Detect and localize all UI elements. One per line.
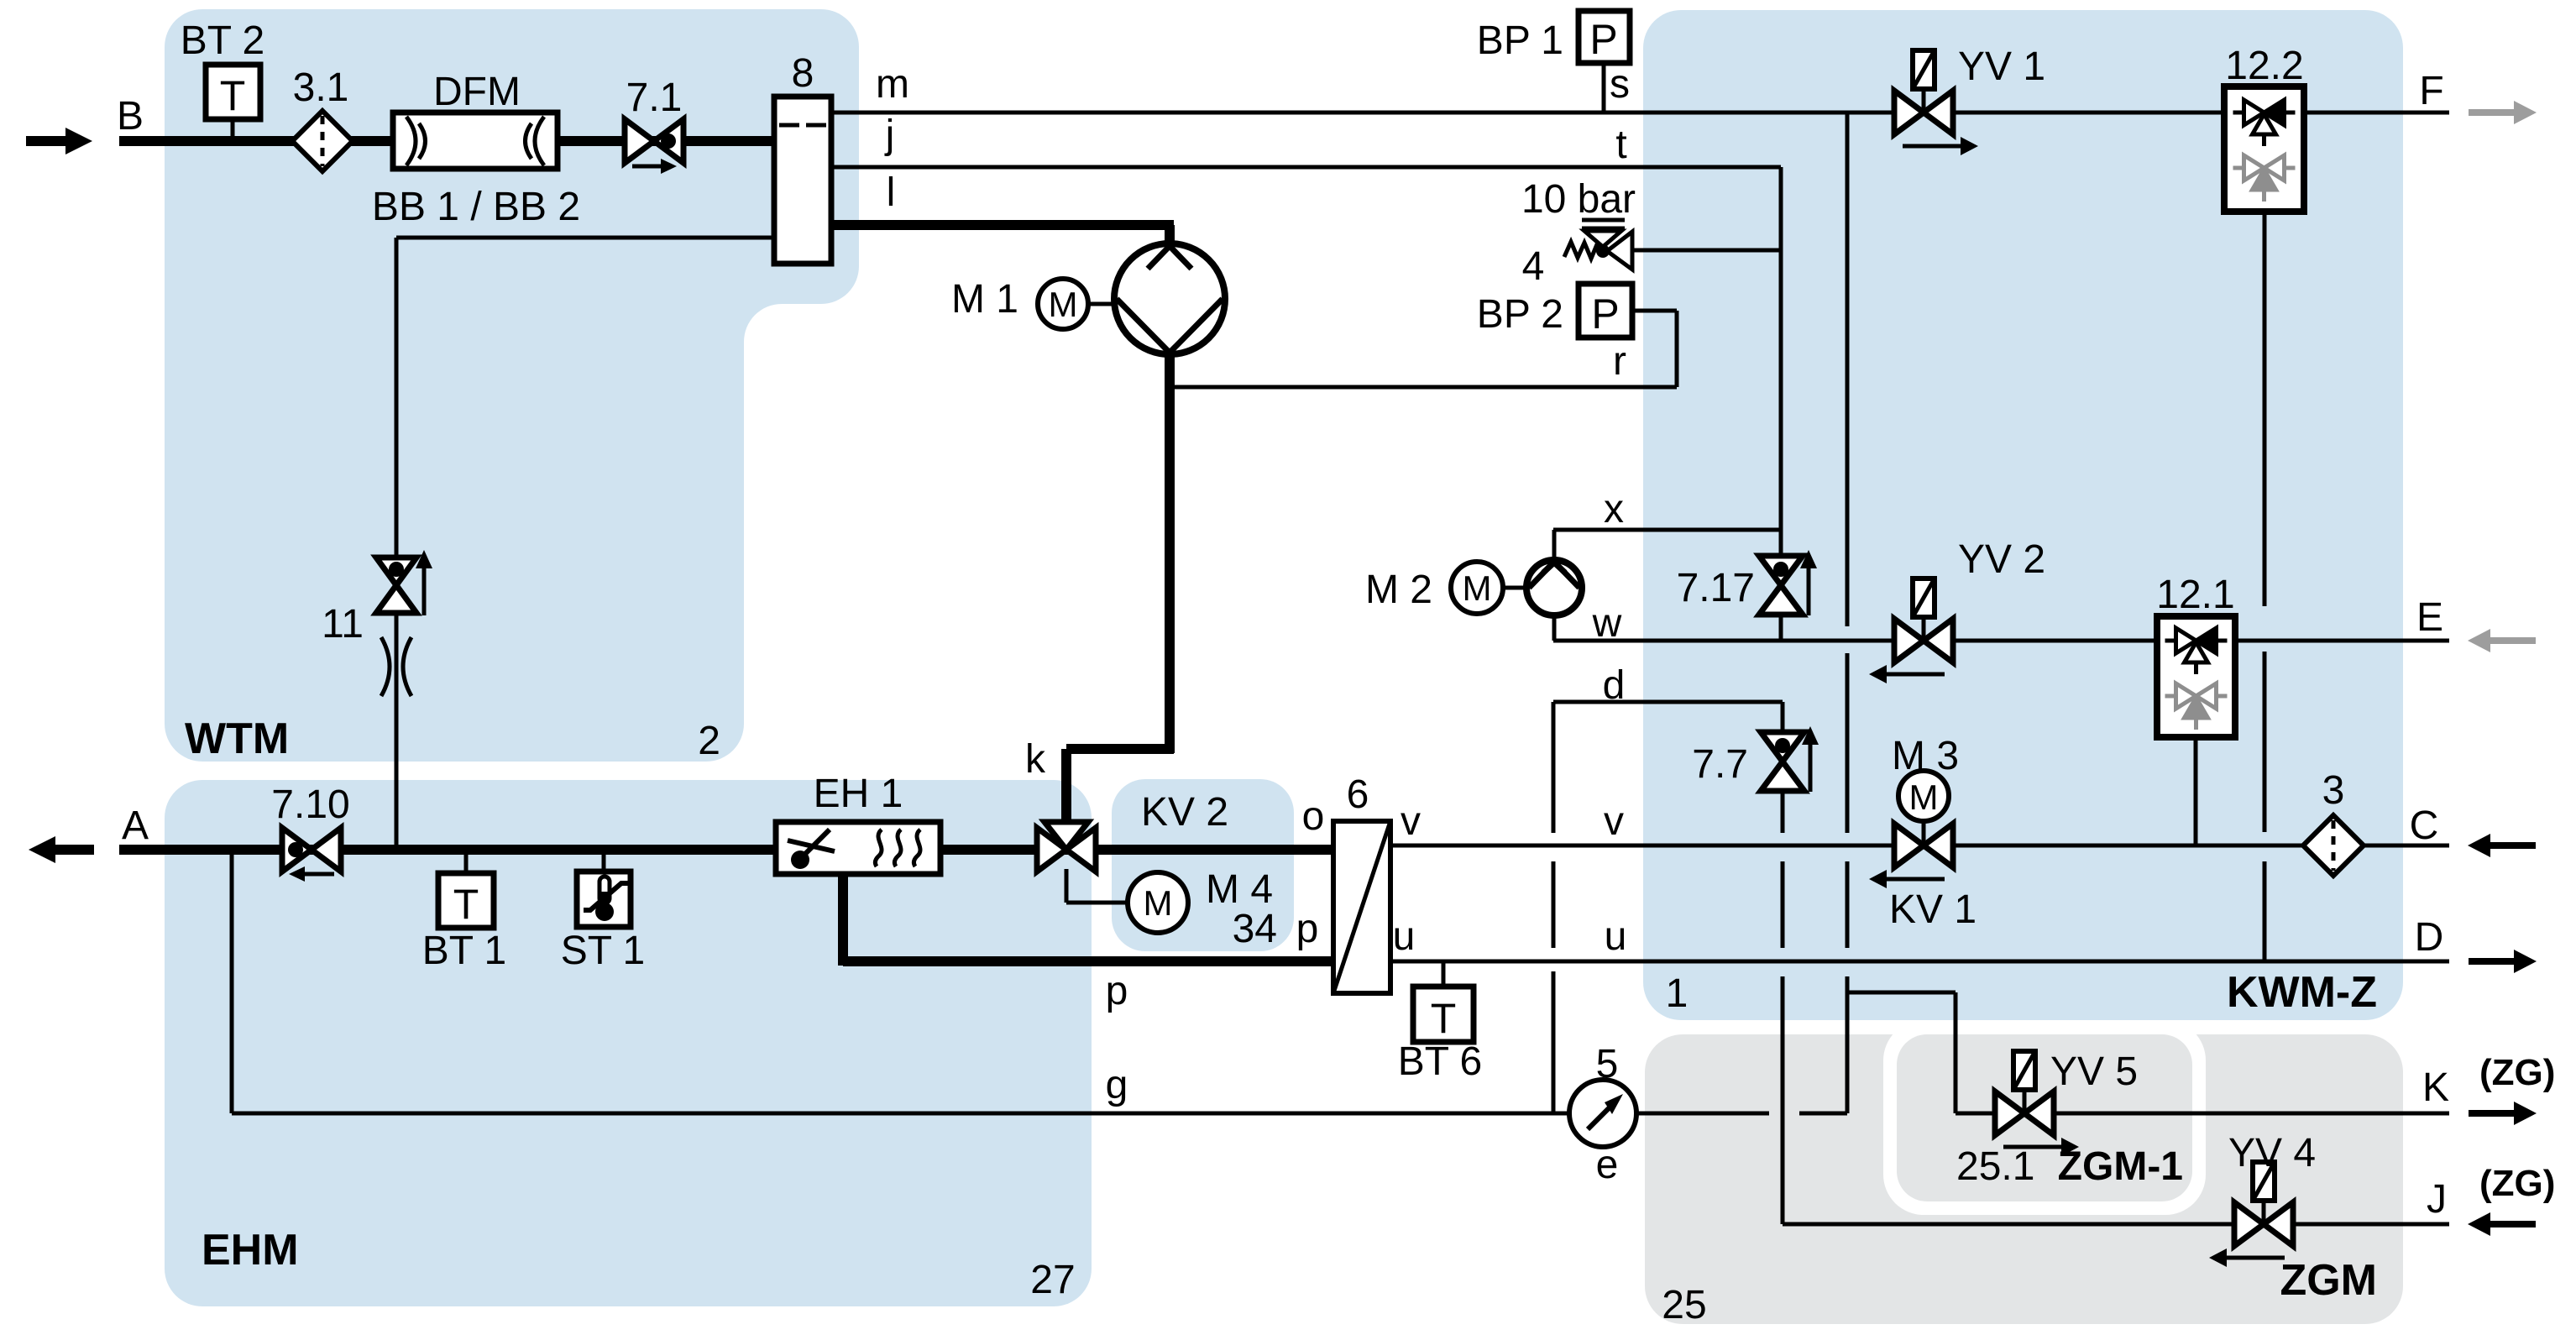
svg-text:YV 1: YV 1 bbox=[1958, 44, 2045, 89]
svg-text:27: 27 bbox=[1030, 1258, 1075, 1302]
svg-text:K: K bbox=[2422, 1065, 2449, 1110]
svg-text:e: e bbox=[1596, 1143, 1619, 1187]
svg-text:m: m bbox=[876, 62, 909, 107]
svg-text:2: 2 bbox=[698, 719, 720, 763]
svg-text:M 3: M 3 bbox=[1892, 734, 1959, 778]
svg-text:k: k bbox=[1025, 737, 1046, 782]
svg-text:25: 25 bbox=[1662, 1283, 1706, 1327]
svg-text:BT 1: BT 1 bbox=[422, 929, 507, 973]
svg-text:KWM-Z: KWM-Z bbox=[2227, 968, 2377, 1017]
svg-text:BP 2: BP 2 bbox=[1477, 292, 1563, 337]
svg-text:EHM: EHM bbox=[202, 1226, 299, 1275]
svg-text:KV 1: KV 1 bbox=[1889, 887, 1977, 932]
svg-text:WTM: WTM bbox=[185, 714, 289, 763]
svg-text:M: M bbox=[1463, 568, 1492, 608]
svg-text:M 1: M 1 bbox=[951, 277, 1018, 322]
svg-text:D: D bbox=[2415, 915, 2444, 960]
svg-text:v: v bbox=[1401, 799, 1421, 844]
svg-text:(ZG): (ZG) bbox=[2479, 1052, 2555, 1093]
svg-text:5: 5 bbox=[1596, 1042, 1619, 1086]
svg-text:j: j bbox=[884, 113, 895, 157]
svg-text:E: E bbox=[2416, 595, 2443, 640]
svg-text:12.2: 12.2 bbox=[2225, 44, 2303, 88]
svg-text:u: u bbox=[1393, 914, 1416, 959]
svg-text:KV 2: KV 2 bbox=[1141, 790, 1228, 835]
svg-text:8: 8 bbox=[792, 51, 814, 96]
svg-text:BP 1: BP 1 bbox=[1477, 18, 1563, 63]
svg-text:A: A bbox=[122, 803, 149, 848]
svg-text:M: M bbox=[1909, 777, 1939, 817]
svg-text:P: P bbox=[1589, 16, 1617, 63]
svg-text:p: p bbox=[1296, 907, 1319, 951]
svg-text:o: o bbox=[1302, 794, 1325, 839]
svg-text:10 bar: 10 bar bbox=[1521, 177, 1636, 222]
svg-text:v: v bbox=[1604, 799, 1624, 844]
svg-text:DFM: DFM bbox=[433, 70, 521, 114]
svg-text:F: F bbox=[2419, 69, 2443, 113]
svg-text:p: p bbox=[1106, 969, 1128, 1013]
svg-text:6: 6 bbox=[1347, 772, 1369, 817]
svg-text:ZGM: ZGM bbox=[2280, 1256, 2377, 1305]
svg-text:4: 4 bbox=[1522, 244, 1545, 289]
svg-text:d: d bbox=[1603, 663, 1626, 708]
svg-text:l: l bbox=[887, 170, 896, 215]
svg-text:11: 11 bbox=[322, 602, 364, 646]
svg-text:7.10: 7.10 bbox=[271, 783, 349, 827]
svg-text:EH 1: EH 1 bbox=[814, 772, 903, 816]
svg-text:g: g bbox=[1106, 1063, 1128, 1107]
svg-text:3: 3 bbox=[2322, 768, 2345, 813]
svg-text:YV 4: YV 4 bbox=[2228, 1131, 2316, 1175]
svg-text:B: B bbox=[117, 94, 144, 139]
svg-text:BB 1 / BB 2: BB 1 / BB 2 bbox=[372, 185, 580, 229]
svg-text:(ZG): (ZG) bbox=[2479, 1163, 2555, 1204]
svg-text:M 2: M 2 bbox=[1365, 568, 1432, 612]
svg-text:M: M bbox=[1049, 285, 1078, 324]
svg-text:M: M bbox=[1144, 883, 1173, 923]
svg-text:25.1: 25.1 bbox=[1956, 1144, 2034, 1189]
svg-text:YV 2: YV 2 bbox=[1958, 537, 2045, 582]
svg-text:s: s bbox=[1610, 62, 1630, 107]
svg-text:x: x bbox=[1604, 487, 1624, 531]
svg-text:T: T bbox=[1431, 995, 1457, 1042]
svg-text:C: C bbox=[2410, 803, 2439, 848]
svg-text:T: T bbox=[220, 72, 246, 119]
svg-text:u: u bbox=[1605, 914, 1627, 959]
svg-text:r: r bbox=[1613, 339, 1626, 384]
svg-text:t: t bbox=[1615, 123, 1626, 167]
svg-text:w: w bbox=[1592, 601, 1622, 646]
svg-text:M 4: M 4 bbox=[1206, 867, 1273, 912]
svg-text:YV 5: YV 5 bbox=[2050, 1049, 2138, 1094]
svg-text:J: J bbox=[2427, 1177, 2447, 1222]
svg-text:P: P bbox=[1591, 291, 1619, 338]
svg-text:7.1: 7.1 bbox=[626, 76, 683, 120]
svg-text:34: 34 bbox=[1233, 907, 1277, 951]
svg-text:7.7: 7.7 bbox=[1692, 742, 1748, 787]
svg-text:7.17: 7.17 bbox=[1677, 566, 1755, 610]
svg-text:1: 1 bbox=[1666, 971, 1689, 1016]
svg-text:BT 6: BT 6 bbox=[1398, 1039, 1483, 1084]
svg-text:3.1: 3.1 bbox=[293, 65, 349, 110]
svg-text:12.1: 12.1 bbox=[2156, 573, 2234, 617]
svg-text:ZGM-1: ZGM-1 bbox=[2058, 1144, 2183, 1189]
svg-text:T: T bbox=[453, 881, 479, 928]
svg-text:BT 2: BT 2 bbox=[181, 18, 265, 63]
svg-text:ST 1: ST 1 bbox=[561, 929, 646, 973]
